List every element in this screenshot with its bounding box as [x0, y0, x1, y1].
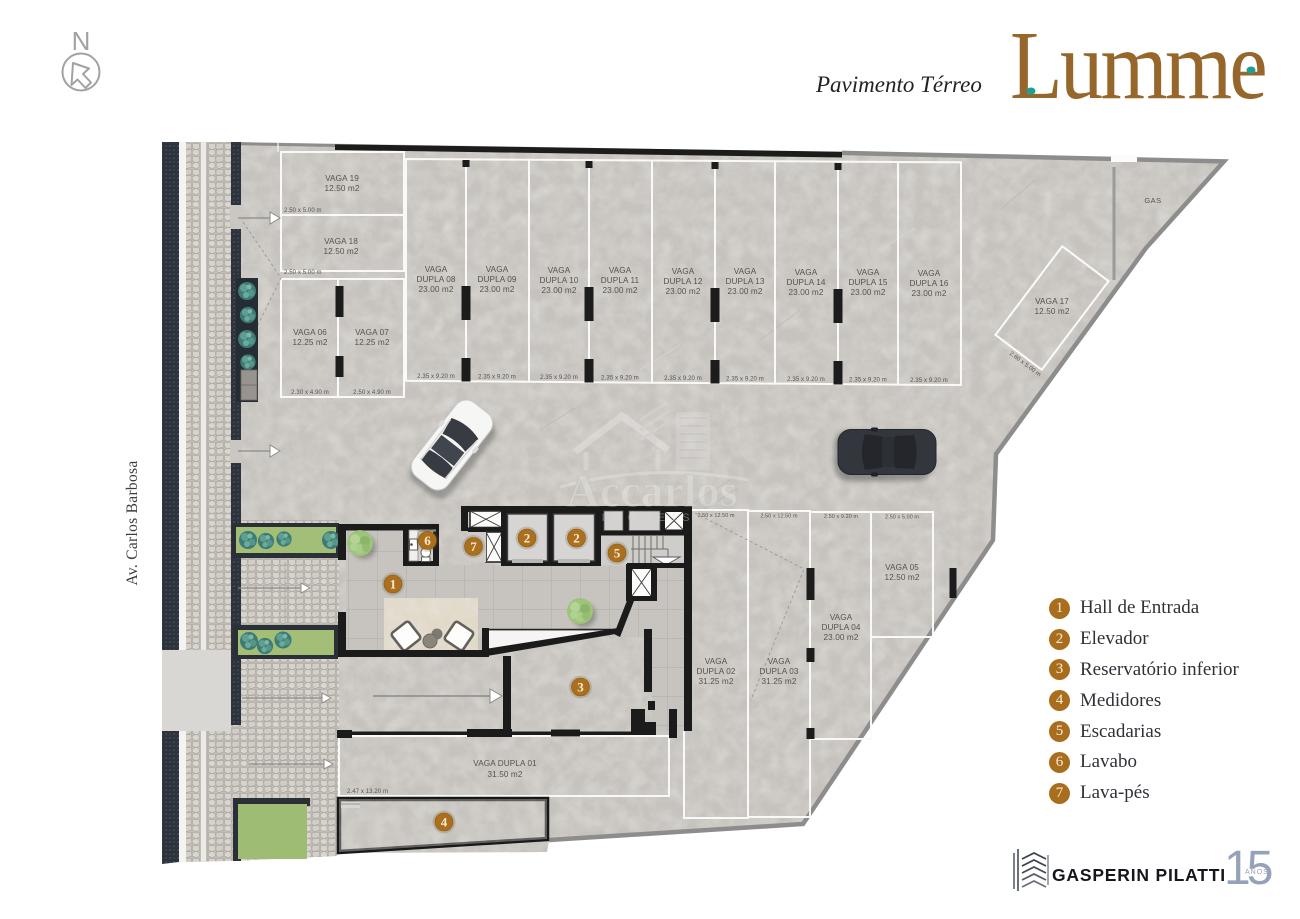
svg-text:VAGA: VAGA	[795, 268, 818, 277]
svg-text:VAGA: VAGA	[918, 269, 941, 278]
svg-text:12.25 m2: 12.25 m2	[293, 338, 328, 347]
svg-text:2.35 x 9.20 m: 2.35 x 9.20 m	[601, 376, 639, 382]
svg-text:2.35 x 9.20 m: 2.35 x 9.20 m	[417, 374, 455, 380]
svg-text:VAGA: VAGA	[548, 266, 571, 275]
svg-text:VAGA 18: VAGA 18	[324, 237, 358, 246]
svg-text:DUPLA 10: DUPLA 10	[539, 276, 578, 285]
svg-text:DUPLA 14: DUPLA 14	[786, 278, 825, 287]
svg-text:12.50 m2: 12.50 m2	[324, 247, 359, 256]
svg-text:23.00 m2: 23.00 m2	[912, 289, 947, 298]
svg-text:VAGA DUPLA 01: VAGA DUPLA 01	[473, 759, 537, 768]
svg-text:2: 2	[524, 531, 531, 546]
svg-text:23.00 m2: 23.00 m2	[824, 633, 859, 642]
svg-text:VAGA 05: VAGA 05	[885, 563, 919, 572]
svg-text:VAGA: VAGA	[486, 265, 509, 274]
svg-text:2.35 x 9.20 m: 2.35 x 9.20 m	[787, 377, 825, 383]
svg-text:VAGA: VAGA	[705, 657, 728, 666]
svg-text:7: 7	[470, 539, 477, 554]
svg-text:VAGA: VAGA	[734, 267, 757, 276]
svg-text:2.35 x 9.20 m: 2.35 x 9.20 m	[726, 377, 764, 383]
svg-text:N: N	[72, 26, 91, 56]
svg-text:VAGA: VAGA	[425, 265, 448, 274]
svg-text:2.35 x 9.20 m: 2.35 x 9.20 m	[910, 378, 948, 384]
svg-text:2.35 x 9.20 m: 2.35 x 9.20 m	[849, 378, 887, 384]
svg-text:DUPLA 02: DUPLA 02	[696, 667, 735, 676]
svg-text:DUPLA 12: DUPLA 12	[663, 277, 702, 286]
svg-text:12.50 m2: 12.50 m2	[1035, 307, 1070, 316]
svg-text:VAGA: VAGA	[830, 613, 853, 622]
svg-text:5: 5	[614, 546, 621, 561]
svg-text:DUPLA 08: DUPLA 08	[416, 275, 455, 284]
svg-text:2.35 x 9.20 m: 2.35 x 9.20 m	[664, 376, 702, 382]
svg-text:23.00 m2: 23.00 m2	[480, 285, 515, 294]
svg-text:VAGA 17: VAGA 17	[1035, 297, 1069, 306]
svg-text:23.00 m2: 23.00 m2	[542, 286, 577, 295]
svg-text:VAGA 06: VAGA 06	[293, 328, 327, 337]
svg-text:DUPLA 15: DUPLA 15	[848, 278, 887, 287]
svg-text:VAGA 07: VAGA 07	[355, 328, 389, 337]
svg-text:VAGA: VAGA	[857, 268, 880, 277]
svg-text:2.50 x 5.00 m: 2.50 x 5.00 m	[885, 515, 919, 521]
svg-text:2.50 x 5.00 m: 2.50 x 5.00 m	[284, 270, 322, 276]
svg-text:12.50 m2: 12.50 m2	[885, 573, 920, 582]
svg-text:3: 3	[577, 680, 584, 695]
svg-text:23.00 m2: 23.00 m2	[789, 288, 824, 297]
svg-text:DUPLA 04: DUPLA 04	[821, 623, 860, 632]
svg-text:23.00 m2: 23.00 m2	[419, 285, 454, 294]
svg-text:DUPLA 13: DUPLA 13	[725, 277, 764, 286]
svg-text:IMÓVEIS: IMÓVEIS	[602, 511, 697, 524]
svg-text:2.47 x 13.20 m: 2.47 x 13.20 m	[347, 789, 388, 795]
svg-text:VAGA: VAGA	[768, 657, 791, 666]
svg-text:2.30 x 4.90 m: 2.30 x 4.90 m	[291, 390, 329, 396]
svg-text:2.50 x 5.00 m: 2.50 x 5.00 m	[284, 208, 322, 214]
svg-text:12.25 m2: 12.25 m2	[355, 338, 390, 347]
svg-text:DUPLA 11: DUPLA 11	[601, 276, 640, 285]
svg-text:23.00 m2: 23.00 m2	[666, 287, 701, 296]
svg-text:2.50 x 12.50 m: 2.50 x 12.50 m	[760, 514, 797, 520]
svg-text:DUPLA 09: DUPLA 09	[477, 275, 516, 284]
svg-text:VAGA 19: VAGA 19	[325, 174, 359, 183]
svg-text:VAGA: VAGA	[609, 266, 632, 275]
svg-text:6: 6	[424, 533, 431, 548]
svg-text:12.50 m2: 12.50 m2	[325, 184, 360, 193]
svg-text:2.50 x 9.20 m: 2.50 x 9.20 m	[824, 514, 858, 520]
svg-text:2.35 x 9.20 m: 2.35 x 9.20 m	[478, 375, 516, 381]
svg-text:31.25 m2: 31.25 m2	[762, 677, 797, 686]
svg-text:2: 2	[573, 531, 580, 546]
svg-text:23.00 m2: 23.00 m2	[851, 288, 886, 297]
svg-text:2.35 x 9.20 m: 2.35 x 9.20 m	[540, 375, 578, 381]
svg-text:1: 1	[390, 577, 397, 592]
svg-text:2.50 x 4.90 m: 2.50 x 4.90 m	[353, 390, 391, 396]
svg-text:DUPLA 03: DUPLA 03	[759, 667, 798, 676]
svg-text:DUPLA 16: DUPLA 16	[909, 279, 948, 288]
svg-text:Accarlos: Accarlos	[566, 465, 737, 516]
svg-text:31.50 m2: 31.50 m2	[488, 770, 523, 779]
svg-text:23.00 m2: 23.00 m2	[728, 287, 763, 296]
svg-text:VAGA: VAGA	[672, 267, 695, 276]
svg-text:31.25 m2: 31.25 m2	[699, 677, 734, 686]
svg-text:23.00 m2: 23.00 m2	[603, 286, 638, 295]
svg-text:4: 4	[441, 815, 448, 830]
svg-text:GAS: GAS	[1144, 196, 1161, 205]
